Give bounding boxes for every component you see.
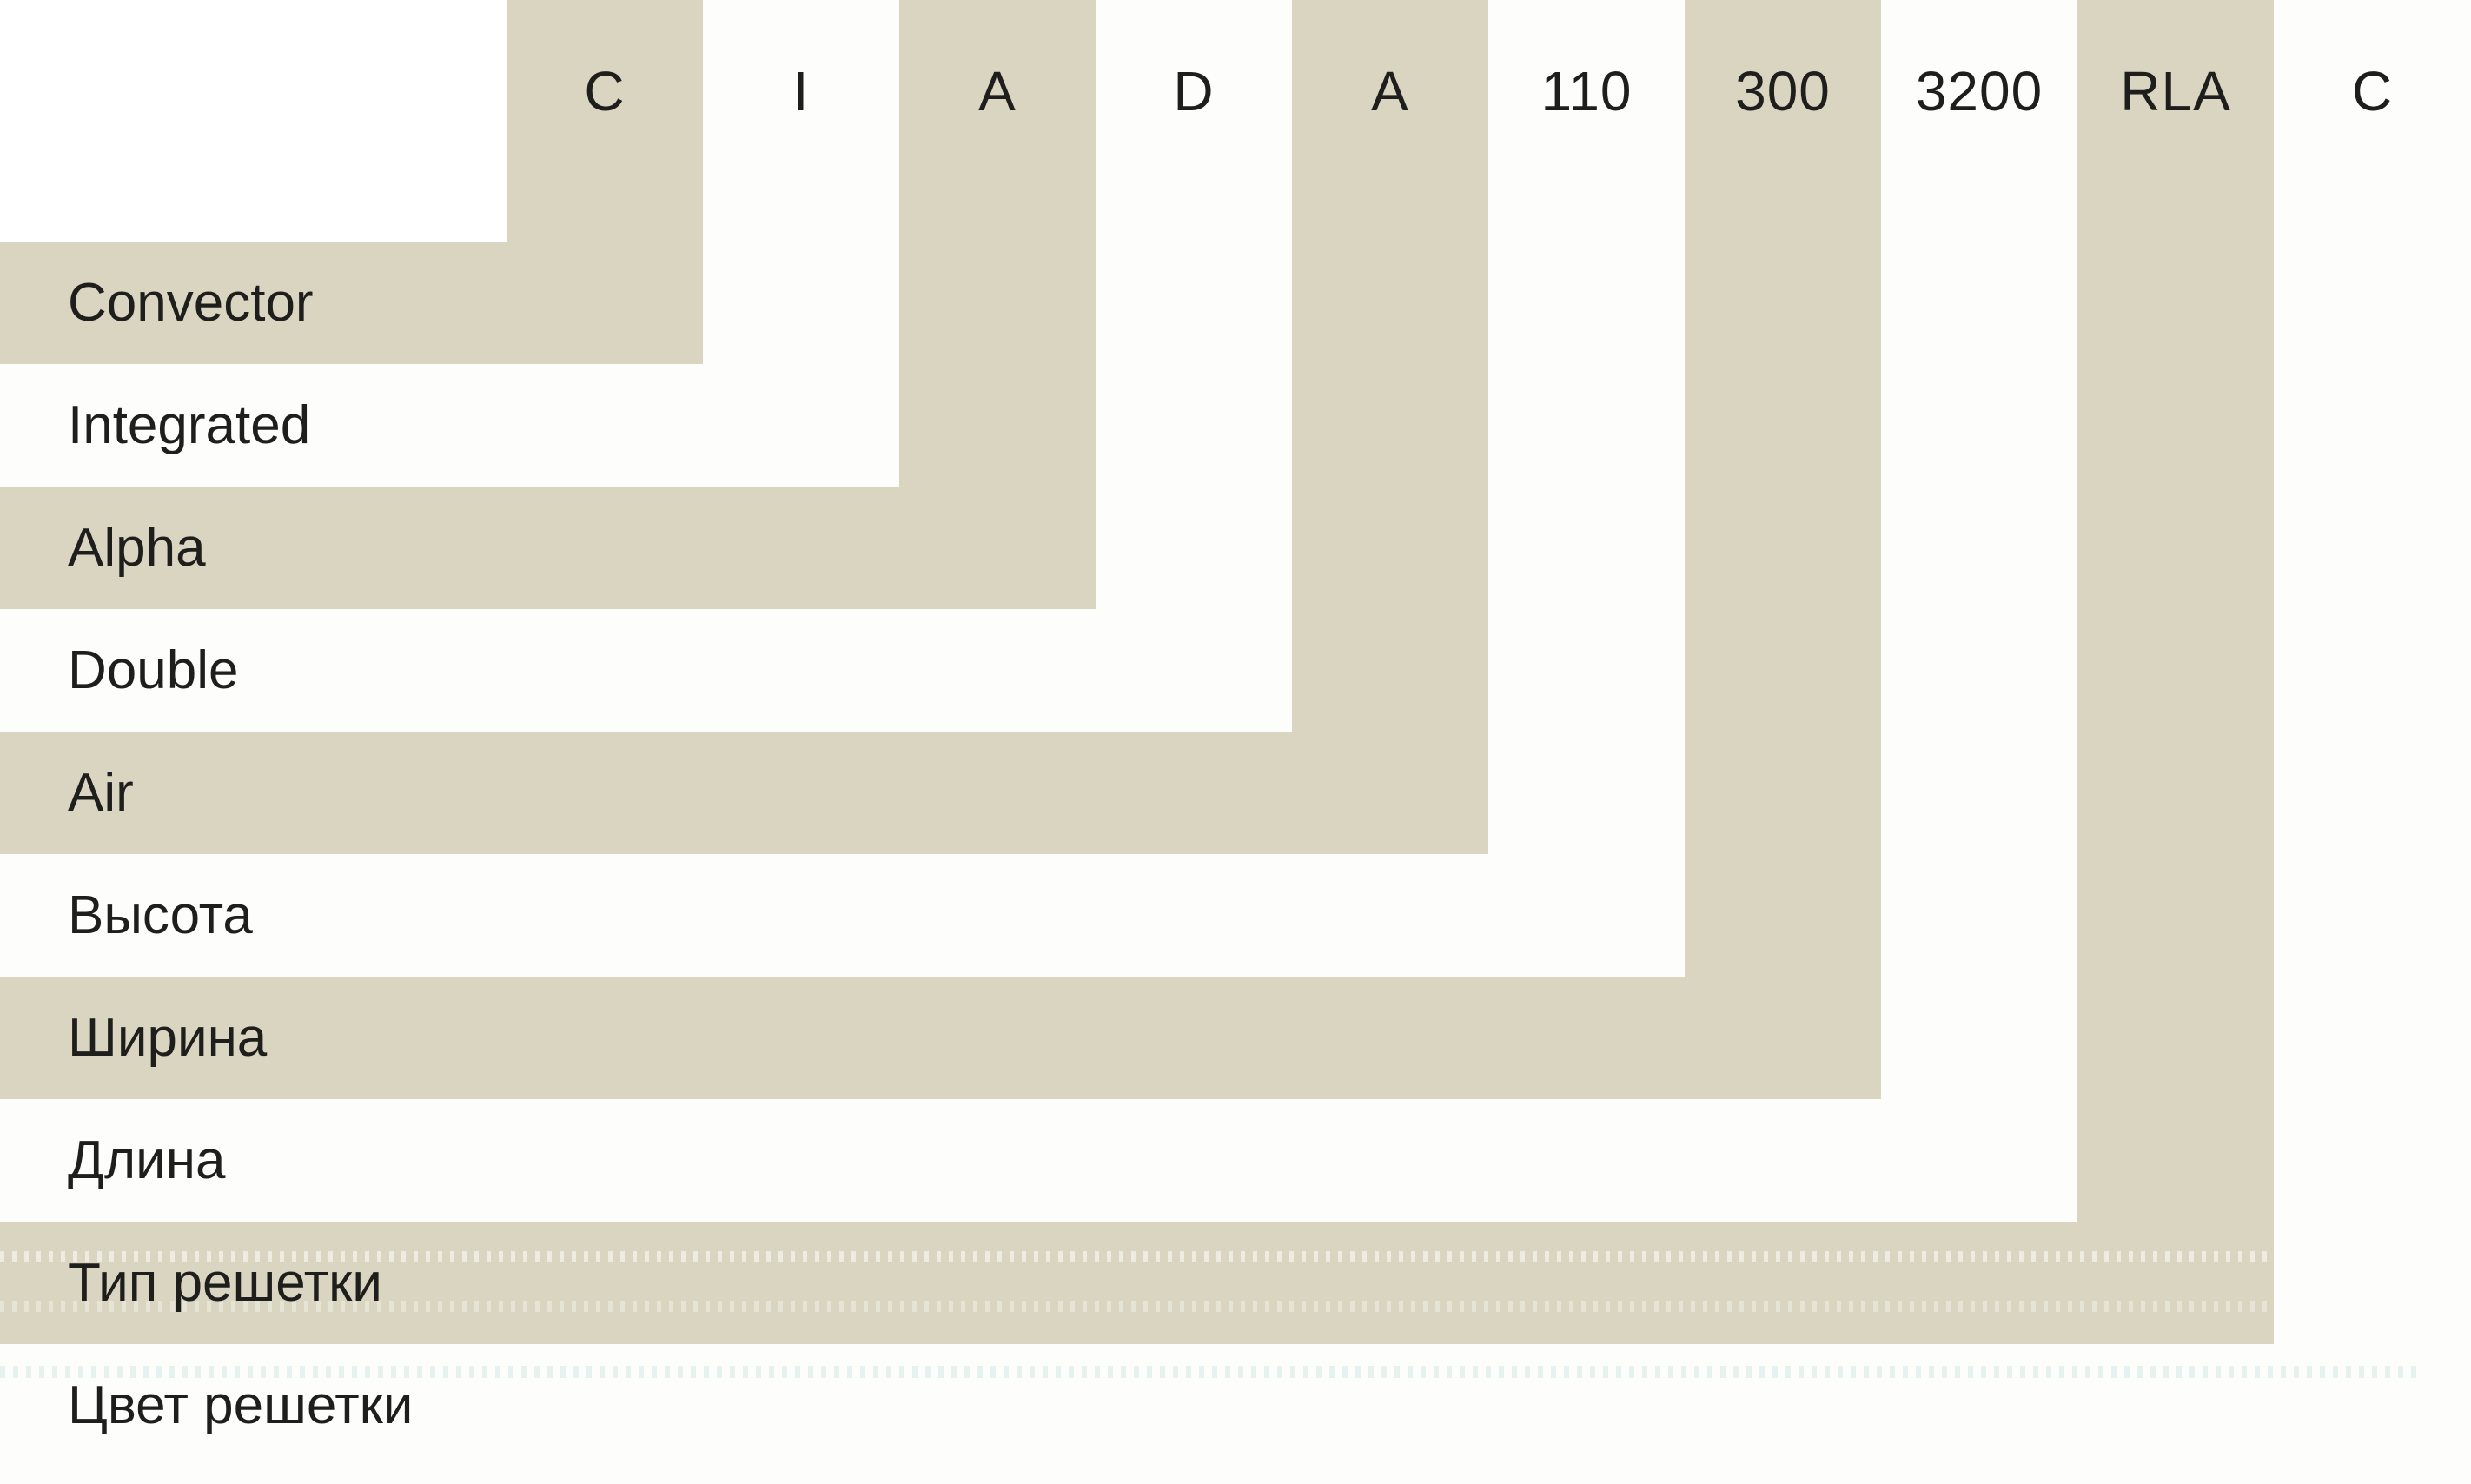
column-band-grille-type [2077, 0, 2274, 1344]
row-band-length [0, 1099, 2077, 1222]
code-segment-air: A [1292, 61, 1488, 122]
label-convector: Convector [68, 242, 314, 364]
code-segment-width: 300 [1685, 61, 1881, 122]
code-segment-height: 110 [1488, 61, 1685, 122]
row-band-air [0, 732, 1488, 854]
column-band-width [1685, 0, 1881, 1099]
code-segment-double: D [1096, 61, 1292, 122]
label-alpha: Alpha [68, 487, 206, 609]
code-segment-convector: C [507, 61, 703, 122]
column-band-length [1881, 0, 2077, 1222]
code-segment-integrated: I [703, 61, 899, 122]
label-grille-color: Цвет решетки [68, 1344, 413, 1467]
code-segment-grille-type: RLA [2077, 61, 2274, 122]
label-width: Ширина [68, 977, 267, 1099]
row-band-width [0, 977, 1881, 1099]
label-length: Длина [68, 1099, 226, 1222]
code-segment-grille-color: C [2274, 61, 2471, 122]
label-integrated: Integrated [68, 364, 310, 487]
label-height: Высота [68, 854, 253, 977]
label-grille-type: Тип решетки [68, 1222, 382, 1344]
code-segment-alpha: A [899, 61, 1096, 122]
column-band-air [1292, 0, 1488, 854]
column-band-grille-color [2274, 0, 2471, 1484]
nomenclature-diagram: C I A D A 110 300 3200 RLA C Convector I… [0, 0, 2471, 1484]
code-segment-length: 3200 [1881, 61, 2077, 122]
label-double: Double [68, 609, 238, 732]
column-band-height [1488, 0, 1685, 977]
label-air: Air [68, 732, 134, 854]
